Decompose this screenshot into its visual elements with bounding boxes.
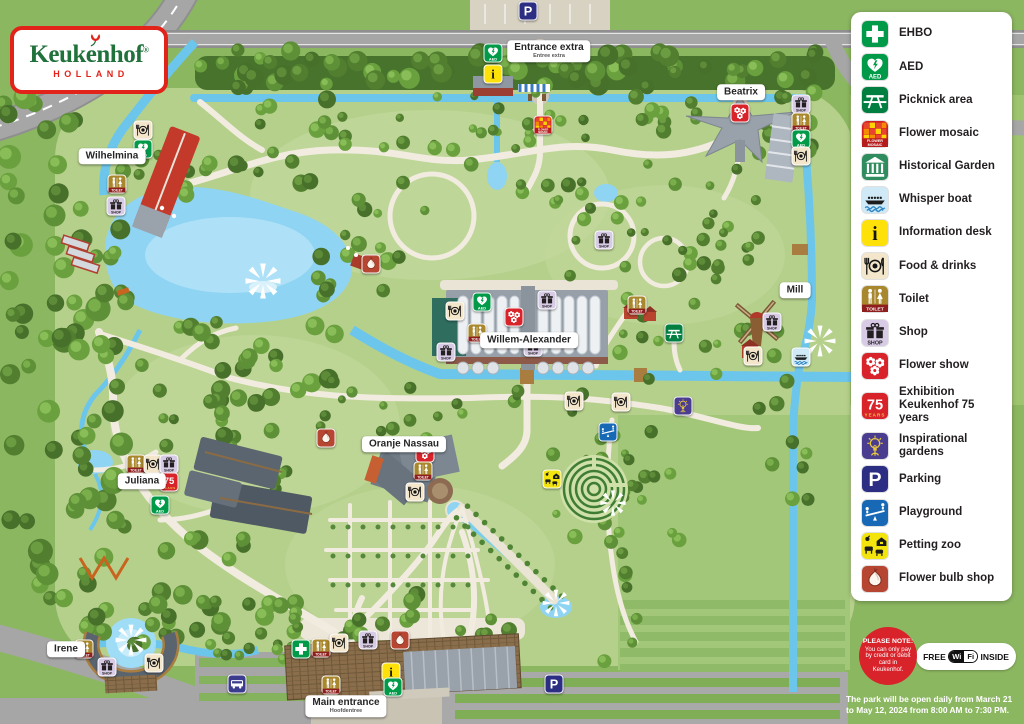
legend-label-boat: Whisper boat — [899, 193, 1005, 206]
food-marker-icon[interactable] — [612, 393, 631, 412]
map-label-willem-alexander: Willem-Alexander — [480, 332, 578, 348]
legend-item-seventyfive: Exhibition Keukenhof 75 years — [862, 386, 1008, 426]
legend-item-parking: Parking — [862, 466, 1008, 492]
legend-label-parking: Parking — [899, 473, 1005, 486]
info-marker-icon[interactable] — [484, 65, 503, 84]
playground-marker-icon[interactable] — [599, 423, 618, 442]
info-icon — [862, 220, 888, 246]
legend-label-bulbshop: Flower bulb shop — [899, 572, 1005, 585]
legend-label-picnic: Picknick area — [899, 94, 1005, 107]
legend-item-flowershow: Flower show — [862, 353, 1008, 379]
map-label-entrance-extra: Entrance extraEntree extra — [507, 40, 590, 62]
aed-icon — [862, 54, 888, 80]
inspiration-marker-icon[interactable] — [674, 397, 693, 416]
bulbshop-marker-icon[interactable] — [391, 631, 410, 650]
food-marker-icon[interactable] — [446, 302, 465, 321]
picnic-icon — [862, 87, 888, 113]
aed-marker-icon[interactable] — [484, 44, 503, 63]
legend-item-playground: Playground — [862, 500, 1008, 526]
map-label-juliana: Juliana — [118, 473, 166, 489]
legend-label-toilet: Toilet — [899, 293, 1005, 306]
opening-hours: The park will be open daily from March 2… — [846, 694, 1020, 716]
inspiration-icon — [862, 433, 888, 459]
mosaic-marker-icon[interactable] — [534, 116, 553, 135]
free-wifi-badge: FREE WiFi INSIDE — [916, 643, 1016, 670]
ehbo-icon — [862, 21, 888, 47]
payment-notice: PLEASE NOTE: You can only pay by credit … — [859, 627, 917, 685]
shop-marker-icon[interactable] — [98, 658, 117, 677]
wifi-free-text: FREE — [923, 652, 946, 662]
legend-label-food: Food & drinks — [899, 260, 1005, 273]
bulbshop-marker-icon[interactable] — [362, 255, 381, 274]
legend-item-mosaic: Flower mosaic — [862, 121, 1008, 147]
legend-label-flowershow: Flower show — [899, 359, 1005, 372]
map-label-mill: Mill — [780, 282, 811, 298]
mosaic-icon — [862, 121, 888, 147]
legend-label-aed: AED — [899, 61, 1005, 74]
legend-label-ehbo: EHBO — [899, 27, 1005, 40]
boat-marker-icon[interactable] — [792, 348, 811, 367]
food-marker-icon[interactable] — [792, 147, 811, 166]
wifi-icon: WiFi — [948, 650, 978, 664]
notice-body: You can only pay by credit or debit card… — [863, 647, 913, 674]
legend-item-historical: Historical Garden — [862, 154, 1008, 180]
map-label-beatrix: Beatrix — [717, 84, 765, 100]
bulbshop-icon — [862, 566, 888, 592]
pettingzoo-icon — [862, 533, 888, 559]
toilet-marker-icon[interactable] — [312, 639, 331, 658]
boat-icon — [862, 187, 888, 213]
legend-items: EHBOAEDPicknick areaFlower mosaicHistori… — [851, 12, 1012, 601]
legend-item-bulbshop: Flower bulb shop — [862, 566, 1008, 592]
legend-label-historical: Historical Garden — [899, 160, 1005, 173]
shop-marker-icon[interactable] — [595, 231, 614, 250]
food-marker-icon[interactable] — [744, 347, 763, 366]
tulip-icon — [88, 33, 103, 50]
parking-icon — [862, 466, 888, 492]
wifi-inside-text: INSIDE — [981, 652, 1009, 662]
notice-title: PLEASE NOTE: — [863, 638, 913, 645]
historical-icon — [862, 154, 888, 180]
shop-marker-icon[interactable] — [437, 343, 456, 362]
ehbo-marker-icon[interactable] — [292, 640, 311, 659]
parking-marker-icon[interactable] — [545, 675, 564, 694]
legend-item-inspiration: Inspirational gardens — [862, 433, 1008, 459]
legend-item-boat: Whisper boat — [862, 187, 1008, 213]
legend-item-aed: AED — [862, 54, 1008, 80]
shop-marker-icon[interactable] — [538, 291, 557, 310]
legend-label-shop: Shop — [899, 326, 1005, 339]
legend-label-seventyfive: Exhibition Keukenhof 75 years — [899, 386, 1005, 426]
shop-icon — [862, 320, 888, 346]
legend-item-picnic: Picknick area — [862, 87, 1008, 113]
playground-icon — [862, 500, 888, 526]
shop-marker-icon[interactable] — [359, 631, 378, 650]
food-marker-icon[interactable] — [145, 654, 164, 673]
flowershow-marker-icon[interactable] — [731, 104, 750, 123]
legend: EHBOAEDPicknick areaFlower mosaicHistori… — [851, 12, 1012, 601]
toilet-marker-icon[interactable] — [414, 462, 433, 481]
logo-wordmark: Keukenhof® — [29, 42, 148, 67]
legend-label-pettingzoo: Petting zoo — [899, 539, 1005, 552]
food-marker-icon[interactable] — [406, 483, 425, 502]
food-marker-icon[interactable] — [134, 121, 153, 140]
shop-marker-icon[interactable] — [763, 313, 782, 332]
picnic-marker-icon[interactable] — [665, 324, 684, 343]
map-label-oranje-nassau: Oranje Nassau — [362, 436, 446, 452]
food-marker-icon[interactable] — [330, 634, 349, 653]
legend-item-pettingzoo: Petting zoo — [862, 533, 1008, 559]
legend-label-inspiration: Inspirational gardens — [899, 433, 1005, 459]
aed-marker-icon[interactable] — [384, 678, 403, 697]
seventyfive-icon — [862, 393, 888, 419]
logo-brand-text: Keukenhof — [29, 41, 143, 68]
legend-label-playground: Playground — [899, 506, 1005, 519]
shop-marker-icon[interactable] — [792, 95, 811, 114]
shop-marker-icon[interactable] — [107, 197, 126, 216]
parking-marker-icon[interactable] — [519, 2, 538, 21]
map-label-wilhelmina: Wilhelmina — [79, 148, 146, 164]
bulbshop-marker-icon[interactable] — [317, 429, 336, 448]
legend-label-mosaic: Flower mosaic — [899, 127, 1005, 140]
map-label-main-entrance: Main entranceHoofdentree — [305, 695, 386, 717]
flowershow-icon — [862, 353, 888, 379]
toilet-icon — [862, 286, 888, 312]
legend-item-info: Information desk — [862, 220, 1008, 246]
bus-marker-icon[interactable] — [228, 675, 247, 694]
pettingzoo-marker-icon[interactable] — [543, 470, 562, 489]
keukenhof-logo: Keukenhof® HOLLAND — [10, 26, 168, 94]
toilet-marker-icon[interactable] — [322, 676, 341, 695]
aed-marker-icon[interactable] — [151, 496, 170, 515]
legend-item-toilet: Toilet — [862, 286, 1008, 312]
legend-item-ehbo: EHBO — [862, 21, 1008, 47]
flowershow-marker-icon[interactable] — [505, 308, 524, 327]
shop-marker-icon[interactable] — [160, 455, 179, 474]
aed-marker-icon[interactable] — [473, 293, 492, 312]
registered-mark: ® — [143, 45, 148, 54]
legend-item-shop: Shop — [862, 320, 1008, 346]
toilet-marker-icon[interactable] — [628, 296, 647, 315]
map-label-irene: Irene — [47, 641, 85, 657]
keukenhof-park-map: AED FLOWER MOSAIC — [0, 0, 1024, 724]
toilet-marker-icon[interactable] — [108, 175, 127, 194]
food-marker-icon[interactable] — [565, 392, 584, 411]
food-icon — [862, 253, 888, 279]
legend-label-info: Information desk — [899, 226, 1005, 239]
logo-subtitle: HOLLAND — [53, 69, 129, 79]
legend-item-food: Food & drinks — [862, 253, 1008, 279]
